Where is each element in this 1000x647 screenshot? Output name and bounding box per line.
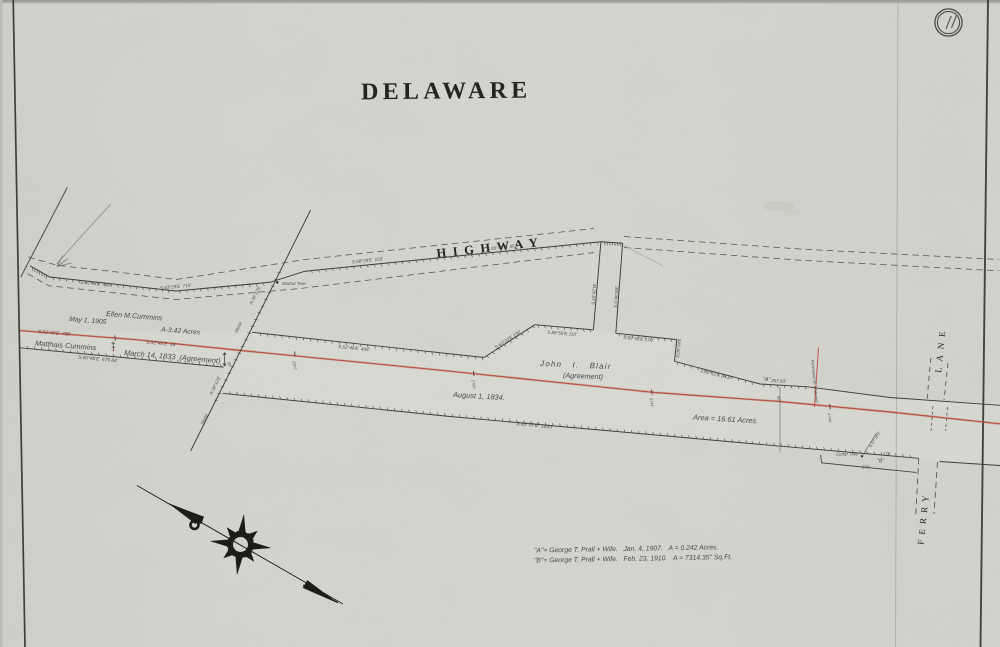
svg-text:Walnut Tree: Walnut Tree bbox=[282, 281, 306, 286]
svg-text:"A": "A" bbox=[763, 377, 772, 383]
svg-text:DELAWARE: DELAWARE bbox=[361, 78, 532, 106]
svg-text:Cedar Tree: Cedar Tree bbox=[836, 452, 858, 457]
svg-text:"B": "B" bbox=[877, 459, 885, 465]
svg-text:(Agreement): (Agreement) bbox=[563, 371, 603, 382]
svg-text:272': 272' bbox=[861, 465, 870, 470]
svg-text:50': 50' bbox=[776, 395, 782, 401]
svg-text:175': 175' bbox=[883, 452, 891, 457]
